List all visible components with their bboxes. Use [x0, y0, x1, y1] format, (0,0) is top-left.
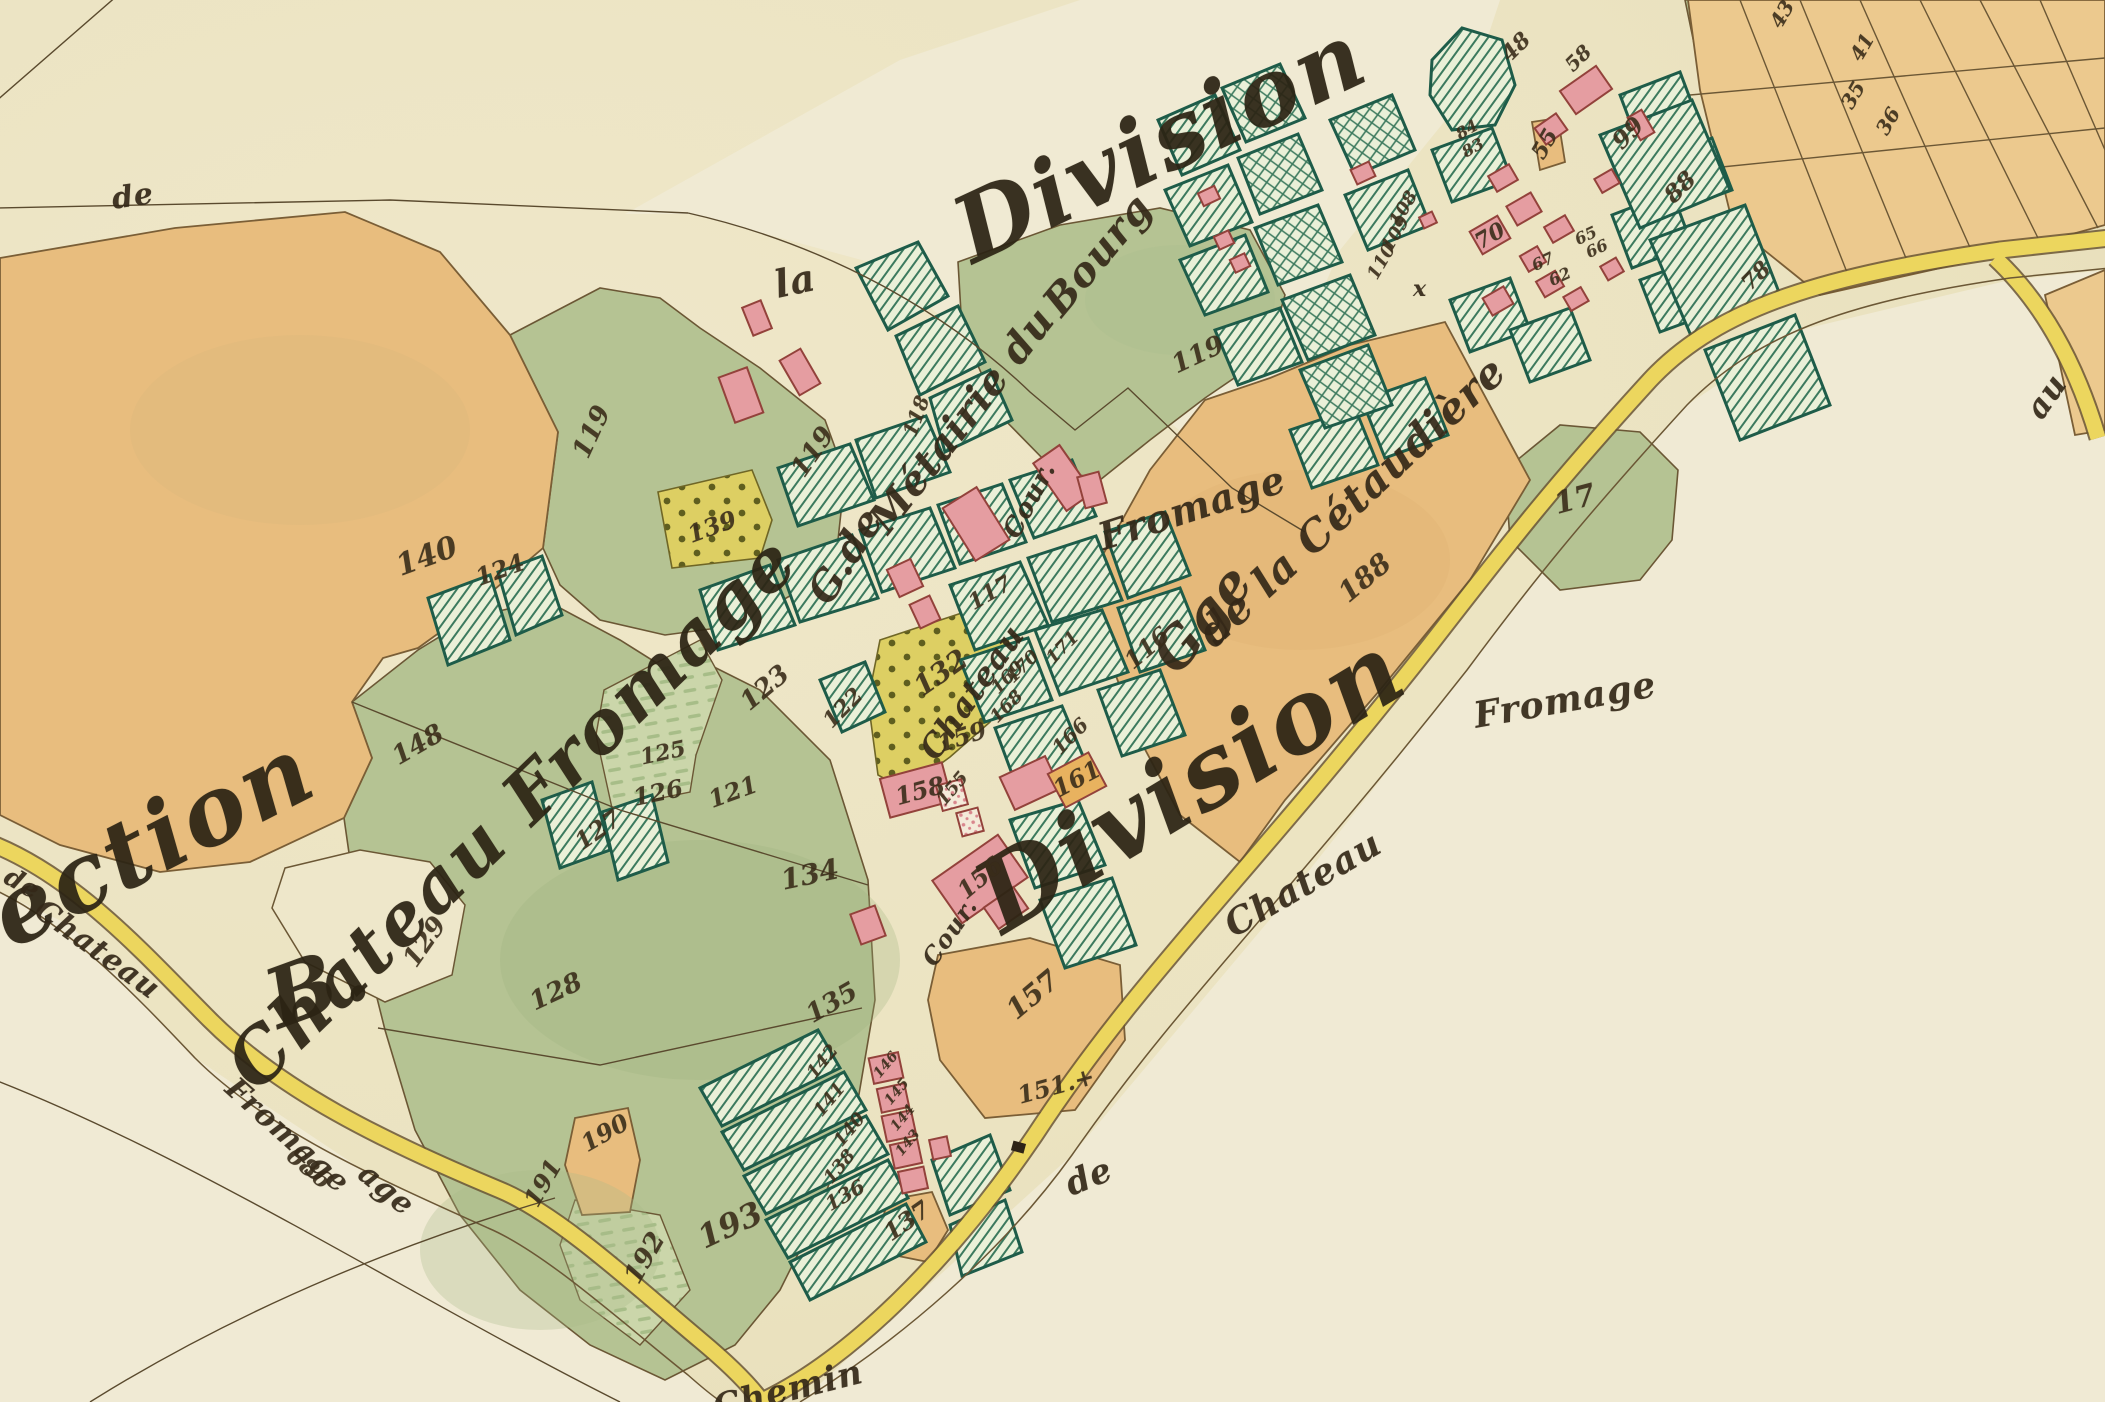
map-label-de: de: [1061, 1152, 1118, 1201]
parcel-number-65: 65: [1573, 224, 1600, 248]
parcel-number-78: 78: [1737, 257, 1774, 294]
parcel-number-192: 192: [620, 1228, 670, 1288]
map-label-Chateau: Chateau: [914, 619, 1029, 765]
parcel-number-136: 136: [822, 1176, 868, 1214]
map-label-Chemin: Chemin: [710, 1355, 867, 1402]
parcel-number-55: 55: [1528, 125, 1562, 163]
map-label-Chateau: Chateau: [29, 895, 165, 1005]
parcel-number-169: 169: [988, 658, 1027, 697]
parcel-number-190: 190: [577, 1110, 632, 1156]
parcel-number-119: 119: [787, 422, 839, 481]
map-label-Fromage: Fromage: [219, 1073, 354, 1199]
map-label-Gge: Gge: [1142, 554, 1261, 682]
parcel-number-99: 99: [1608, 113, 1649, 154]
parcel-number-137: 137: [880, 1197, 935, 1245]
map-label-Métairie-du: Métairie du: [862, 300, 1062, 540]
map-label-Cour-: Cour.: [918, 894, 981, 970]
parcel-number-83: 83: [1459, 136, 1486, 161]
parcel-number-129: 129: [399, 912, 451, 971]
parcel-number-140: 140: [392, 532, 461, 582]
parcel-number-36: 36: [1872, 104, 1903, 138]
parcel-number-109: 109: [1379, 213, 1413, 255]
parcel-number-138: 138: [821, 1147, 859, 1187]
parcel-number-191: 191: [520, 1155, 566, 1210]
parcel-number-88: 88: [1660, 167, 1701, 208]
parcel-number-35: 35: [1837, 78, 1868, 112]
parcel-number-168: 168: [987, 687, 1026, 726]
parcel-number-62: 62: [1547, 265, 1574, 289]
parcel-number-123: 123: [736, 661, 794, 716]
parcel-number-121: 121: [705, 772, 760, 812]
map-label-la: la: [771, 258, 819, 304]
parcel-number-122: 122: [819, 684, 867, 732]
parcel-number-156: 156: [953, 853, 1007, 904]
map-label-G-de: G.de: [801, 501, 890, 610]
parcel-number-126: 126: [631, 776, 685, 810]
parcel-number-686: 686: [282, 1143, 336, 1194]
parcel-number-17: 17: [1551, 480, 1599, 520]
parcel-number-134: 134: [779, 855, 842, 895]
map-label-de: de: [110, 179, 156, 215]
map-label-au: au: [2020, 368, 2073, 424]
parcel-number-158: 158: [893, 773, 948, 809]
parcel-number-125: 125: [638, 737, 688, 768]
map-label-Section: Section: [0, 720, 329, 995]
map-label-Division: Division: [959, 616, 1421, 948]
map-label-age: age: [352, 1158, 419, 1221]
parcel-number-66: 66: [1584, 237, 1611, 261]
parcel-number-157: 157: [1002, 965, 1065, 1024]
parcel-number-141: 141: [811, 1080, 849, 1120]
parcel-number-58: 58: [1561, 41, 1595, 75]
map-label-x: x: [1413, 278, 1427, 300]
parcel-number-127: 127: [571, 806, 626, 854]
map-label-Division: Division: [940, 7, 1380, 277]
parcel-number-143: 143: [893, 1127, 923, 1158]
parcel-number-144: 144: [888, 1102, 918, 1133]
parcel-number-170: 170: [1003, 647, 1042, 686]
map-label-Fromage: Fromage: [1094, 460, 1291, 556]
parcel-number-159: 159: [934, 718, 989, 756]
label-layer: DivisionDivisionSectionB.Chateau Fromage…: [0, 0, 2105, 1402]
map-label-Cour-: Cour.: [999, 458, 1061, 543]
parcel-number-128: 128: [526, 969, 586, 1016]
parcel-number-117: 117: [965, 572, 1016, 614]
parcel-number-166: 166: [1048, 714, 1092, 758]
parcel-number-119: 119: [1168, 332, 1228, 379]
parcel-number-48: 48: [1497, 28, 1534, 65]
parcel-number-140: 140: [831, 1110, 869, 1150]
map-label-Bourg: Bourg: [1037, 187, 1160, 323]
parcel-number-135: 135: [802, 978, 862, 1028]
parcel-number-139: 139: [684, 507, 739, 547]
parcel-number-155: 155: [934, 769, 972, 809]
map-label-B-: B.: [255, 929, 381, 1042]
parcel-number-124: 124: [472, 550, 527, 590]
parcel-number-119: 119: [569, 402, 616, 462]
parcel-number-193: 193: [693, 1196, 767, 1253]
map-label-Chateau: Chateau: [1219, 825, 1388, 943]
map-label-de: de: [0, 864, 44, 905]
parcel-number-43: 43: [1766, 0, 1797, 31]
parcel-number-116: 116: [1120, 623, 1174, 674]
parcel-number-142: 142: [804, 1042, 842, 1082]
parcel-number-108: 108: [1387, 188, 1421, 230]
map-label-Chateau-Fromage: Chateau Fromage: [214, 522, 810, 1101]
map-label-Fromage: Fromage: [1471, 666, 1659, 733]
parcel-number-188: 188: [1334, 548, 1397, 607]
parcel-number-151-: 151.+: [1015, 1064, 1097, 1108]
parcel-number-70: 70: [1471, 219, 1509, 253]
parcel-number-118: 118: [899, 393, 932, 439]
parcel-number-145: 145: [882, 1076, 912, 1107]
cadastral-map-canvas: DivisionDivisionSectionB.Chateau Fromage…: [0, 0, 2105, 1402]
parcel-number-148: 148: [388, 720, 448, 770]
parcel-number-41: 41: [1846, 30, 1877, 64]
parcel-number-110: 110: [1365, 241, 1399, 283]
parcel-number-146: 146: [871, 1049, 901, 1080]
parcel-number-132: 132: [909, 645, 973, 701]
parcel-number-84: 84: [1453, 118, 1480, 143]
map-label-de-la-Cétaudière: de la Cétaudière: [1190, 349, 1513, 654]
parcel-number-161: 161: [1049, 757, 1105, 802]
parcel-number-171: 171: [1043, 628, 1082, 667]
parcel-number-67: 67: [1530, 250, 1557, 274]
